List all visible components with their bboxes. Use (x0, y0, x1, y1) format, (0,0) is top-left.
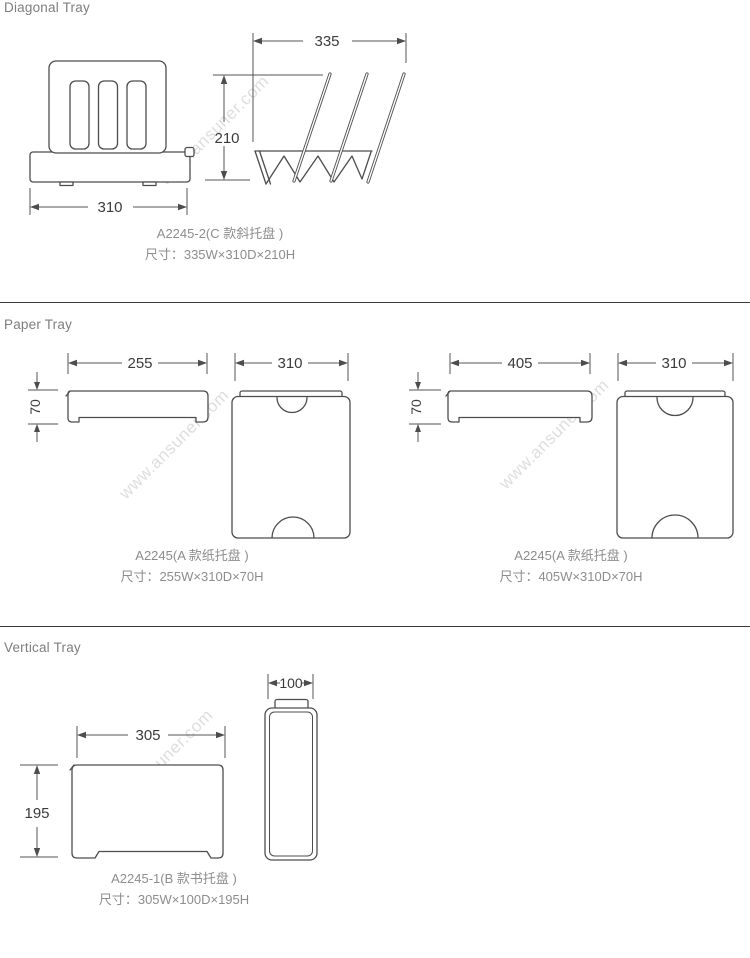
label-block-paper-right: A2245(A 款纸托盘 ) 尺寸：405W×310D×70H (451, 549, 691, 584)
label-block-paper-left: A2245(A 款纸托盘 ) 尺寸：255W×310D×70H (72, 549, 312, 584)
dim-paper-right-height: 70 (408, 399, 424, 415)
dim-paper-left-depth: 310 (277, 355, 302, 372)
dim-paper-left-width: 255 (127, 355, 152, 372)
model-label-paper-left: A2245(A 款纸托盘 ) (72, 549, 312, 563)
dim-vertical-height: 195 (24, 805, 49, 822)
dim-diagonal-side-width: 335 (314, 33, 339, 50)
size-label-vertical: 尺寸：305W×100D×195H (54, 893, 294, 907)
paper-tray-left-top-view: 310 (232, 353, 350, 538)
model-label-paper-right: A2245(A 款纸托盘 ) (451, 549, 691, 563)
model-label-vertical: A2245-1(B 款书托盘 ) (54, 872, 294, 886)
technical-drawings: www.ansuner.com www.ansuner.com www.ansu… (0, 0, 750, 958)
paper-tray-right-top-view: 310 (617, 353, 733, 538)
dim-paper-left-height: 70 (27, 399, 43, 415)
diagonal-tray-front-view: 310 (30, 61, 194, 216)
dim-vertical-width: 305 (135, 727, 160, 744)
label-block-diagonal: A2245-2(C 款斜托盘 ) 尺寸：335W×310D×210H (100, 227, 340, 262)
size-label-paper-right: 尺寸：405W×310D×70H (451, 570, 691, 584)
spec-sheet-page: Diagonal Tray Paper Tray Vertical Tray w… (0, 0, 750, 958)
dim-vertical-depth: 100 (279, 675, 303, 691)
dim-paper-right-width: 405 (507, 355, 532, 372)
vertical-tray-side-view: 100 (265, 674, 317, 860)
dim-diagonal-height: 210 (214, 130, 239, 147)
model-label-diagonal: A2245-2(C 款斜托盘 ) (100, 227, 340, 241)
size-label-paper-left: 尺寸：255W×310D×70H (72, 570, 312, 584)
dim-paper-right-depth: 310 (661, 355, 686, 372)
size-label-diagonal: 尺寸：335W×310D×210H (100, 248, 340, 262)
label-block-vertical: A2245-1(B 款书托盘 ) 尺寸：305W×100D×195H (54, 872, 294, 907)
vertical-tray-front-view: 305 195 (20, 726, 225, 858)
dim-diagonal-front-width: 310 (97, 199, 122, 216)
